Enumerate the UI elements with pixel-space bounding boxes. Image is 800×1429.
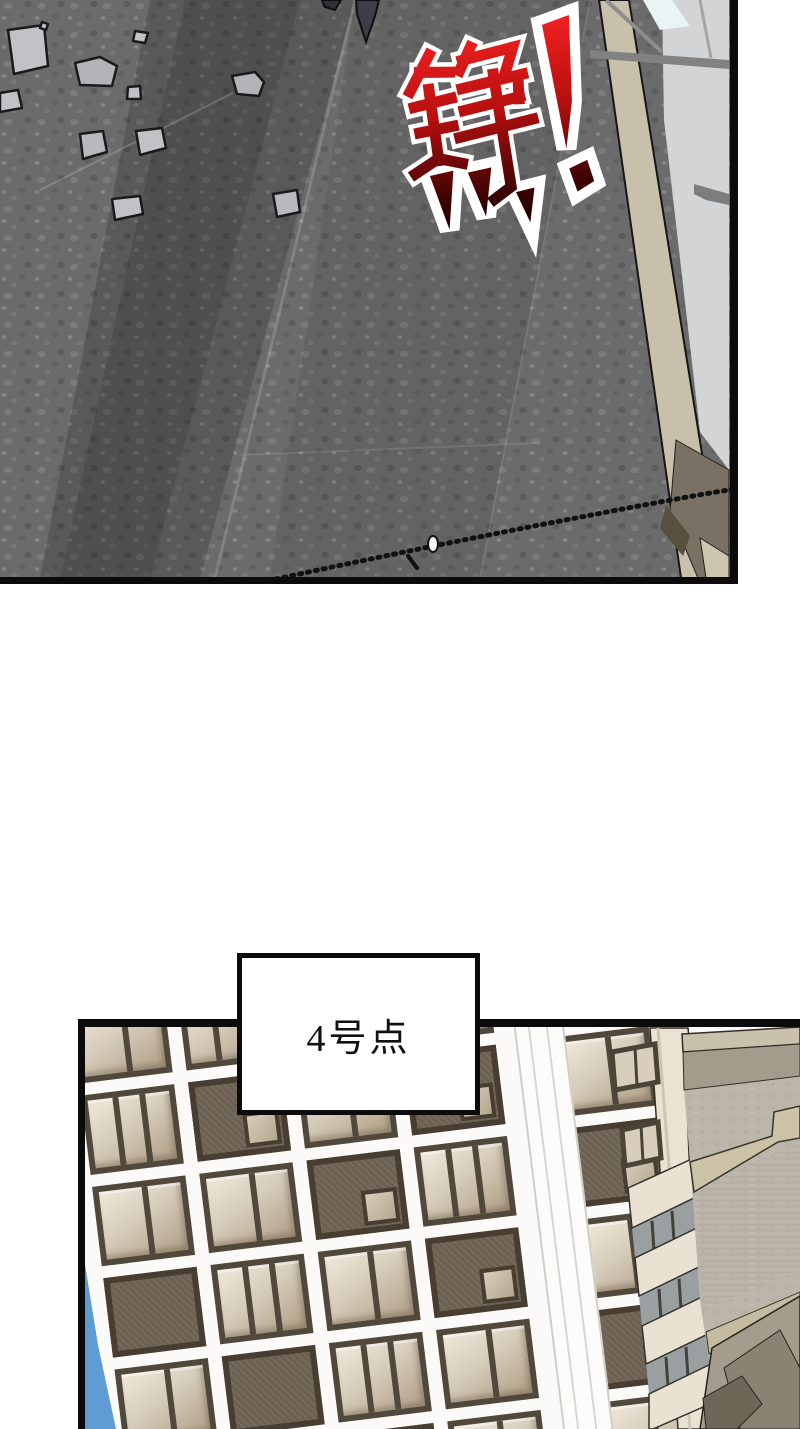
- panel-border-bottom: [0, 577, 738, 584]
- facade-dark-panel: [306, 1149, 409, 1240]
- debris-piece: [8, 25, 48, 74]
- debris-piece: [0, 90, 22, 112]
- window-mullion: [497, 1421, 511, 1429]
- debris-piece: [80, 131, 107, 159]
- broken-glass-shard: [361, 1187, 401, 1226]
- broken-glass-shard: [643, 1337, 683, 1376]
- facade-window: [436, 1319, 539, 1410]
- window-mullion: [367, 1251, 381, 1319]
- facade-window: [329, 1332, 432, 1423]
- window-mullion: [605, 1037, 619, 1105]
- comic-page: 4号点 铮！: [0, 0, 800, 1429]
- facade-dark-panel: [103, 1267, 206, 1358]
- broken-glass-shard: [479, 1265, 519, 1304]
- panel-border-right: [730, 0, 738, 578]
- facade-window: [81, 1084, 184, 1175]
- debris-piece: [133, 31, 148, 43]
- window-mullion: [649, 1402, 663, 1429]
- window-mullion: [485, 1329, 499, 1397]
- window-mullion: [387, 1341, 401, 1409]
- window-mullion: [112, 1097, 126, 1165]
- street-scene-overlay: [0, 0, 738, 578]
- facade-window: [318, 1240, 421, 1331]
- window-mullion: [445, 1149, 459, 1217]
- window-mullion: [360, 1345, 374, 1413]
- debris-piece: [40, 22, 48, 30]
- facade-dark-panel: [222, 1345, 325, 1429]
- facade-window: [199, 1162, 302, 1253]
- window-mullion: [119, 1020, 133, 1072]
- debris-piece: [75, 57, 117, 86]
- facade-window: [114, 1358, 217, 1429]
- facade-dark-panel: [340, 1423, 443, 1429]
- facade-window: [447, 1410, 550, 1429]
- caption-box: 4号点: [237, 953, 480, 1115]
- window-mullion: [139, 1094, 153, 1162]
- caption-text: 4号点: [306, 1007, 410, 1062]
- window-mullion: [627, 1219, 641, 1287]
- window-mullion: [472, 1146, 486, 1214]
- debris-piece: [273, 190, 300, 217]
- facade-dark-panel: [425, 1227, 528, 1318]
- facade-window: [600, 1391, 703, 1429]
- broken-glass-shard: [621, 1155, 661, 1194]
- debris-piece: [232, 72, 264, 96]
- window-mullion: [141, 1186, 155, 1254]
- window-mullion: [242, 1266, 256, 1334]
- window-mullion: [164, 1369, 178, 1429]
- window-mullion: [269, 1263, 283, 1331]
- panel-border-left: [78, 1019, 85, 1429]
- facade-window: [78, 1020, 173, 1084]
- panel-street-scene: [0, 0, 738, 584]
- debris-piece: [127, 86, 141, 99]
- facade-window: [414, 1136, 517, 1227]
- facade-window: [210, 1254, 313, 1345]
- window-mullion: [249, 1173, 263, 1241]
- facade-window: [92, 1175, 195, 1266]
